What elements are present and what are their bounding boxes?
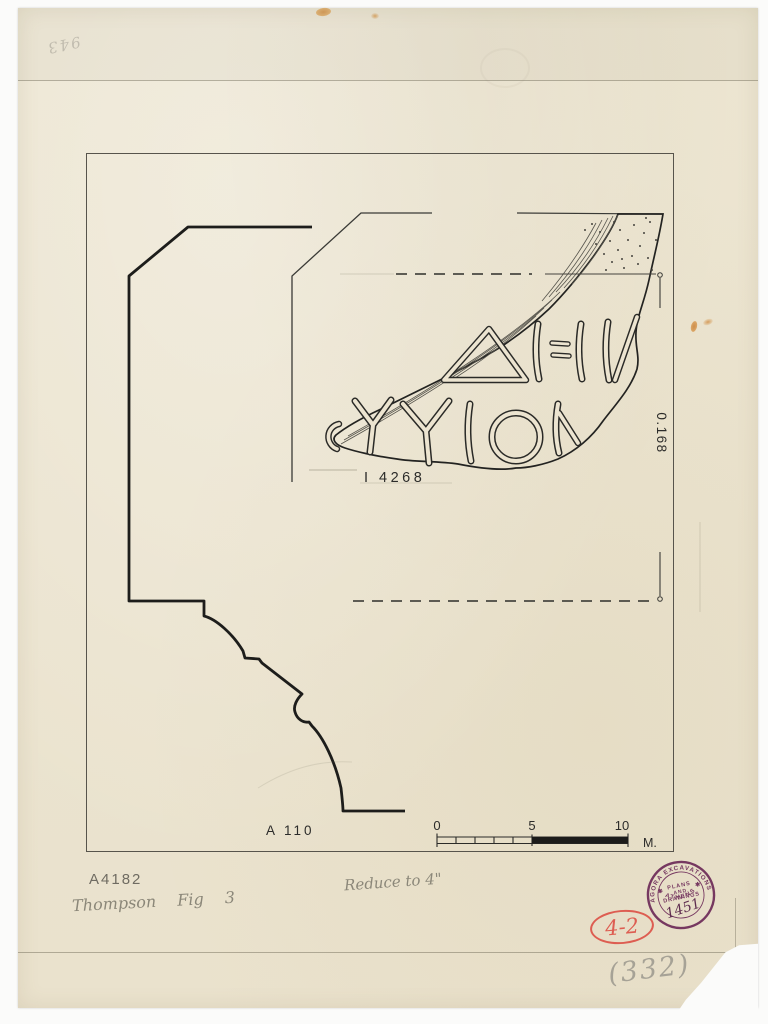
moulding-profile-path bbox=[129, 227, 405, 811]
scale-tick-10: 10 bbox=[615, 818, 629, 833]
scale-tick-0: 0 bbox=[433, 818, 440, 833]
pencil-catalog-number: A4182 bbox=[89, 871, 142, 888]
scale-unit-label: M. bbox=[643, 836, 657, 850]
fragment-label: I 4268 bbox=[364, 470, 425, 486]
block-outline-path bbox=[292, 213, 432, 482]
dimension-label: 0.168 bbox=[654, 412, 669, 453]
scale-bar: 0 5 10 M. bbox=[433, 818, 657, 850]
profile-label: A 110 bbox=[266, 823, 315, 838]
scale-tick-5: 5 bbox=[528, 818, 535, 833]
inscription-letters-dark bbox=[328, 317, 637, 463]
